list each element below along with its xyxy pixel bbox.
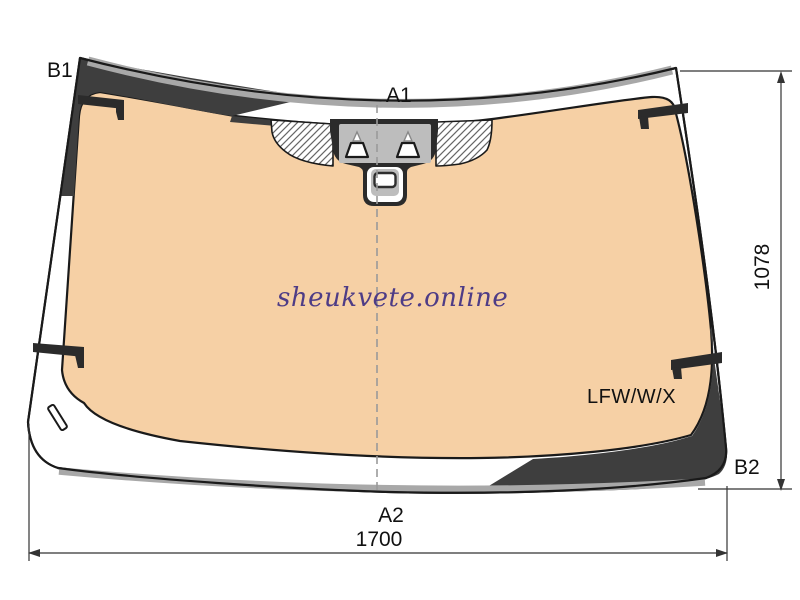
dim-arrow-right <box>716 549 728 557</box>
dimension-height-value: 1078 <box>751 244 774 291</box>
watermark-text: sheukvete.online <box>277 283 508 313</box>
callout-a1: A1 <box>386 84 412 107</box>
sensor-lens-left <box>346 143 368 157</box>
dim-arrow-left <box>28 549 40 557</box>
dimension-width-value: 1700 <box>356 528 403 551</box>
part-code-label: LFW/W/X <box>587 386 676 408</box>
callout-a2: A2 <box>378 504 404 527</box>
dim-arrow-up <box>777 71 785 83</box>
windshield-diagram: B1 A1 A2 B2 1078 1700 LFW/W/X sheukvete.… <box>0 0 800 600</box>
diagram-canvas: B1 A1 A2 B2 1078 1700 LFW/W/X sheukvete.… <box>0 0 800 600</box>
callout-b1: B1 <box>47 59 73 82</box>
callout-b2: B2 <box>734 456 760 479</box>
sensor-lens-right <box>397 143 419 157</box>
